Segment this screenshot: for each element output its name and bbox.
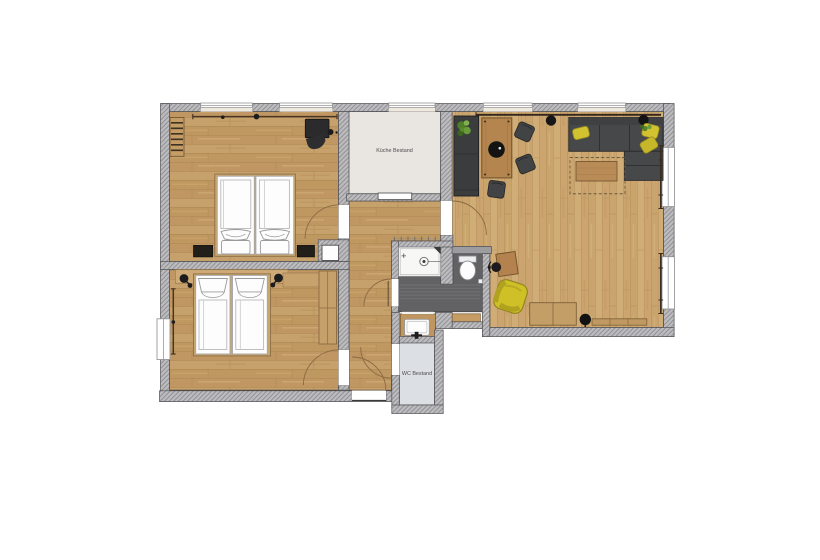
svg-text:WC Bestand: WC Bestand xyxy=(402,371,432,377)
svg-text:Küche Bestand: Küche Bestand xyxy=(376,148,413,154)
